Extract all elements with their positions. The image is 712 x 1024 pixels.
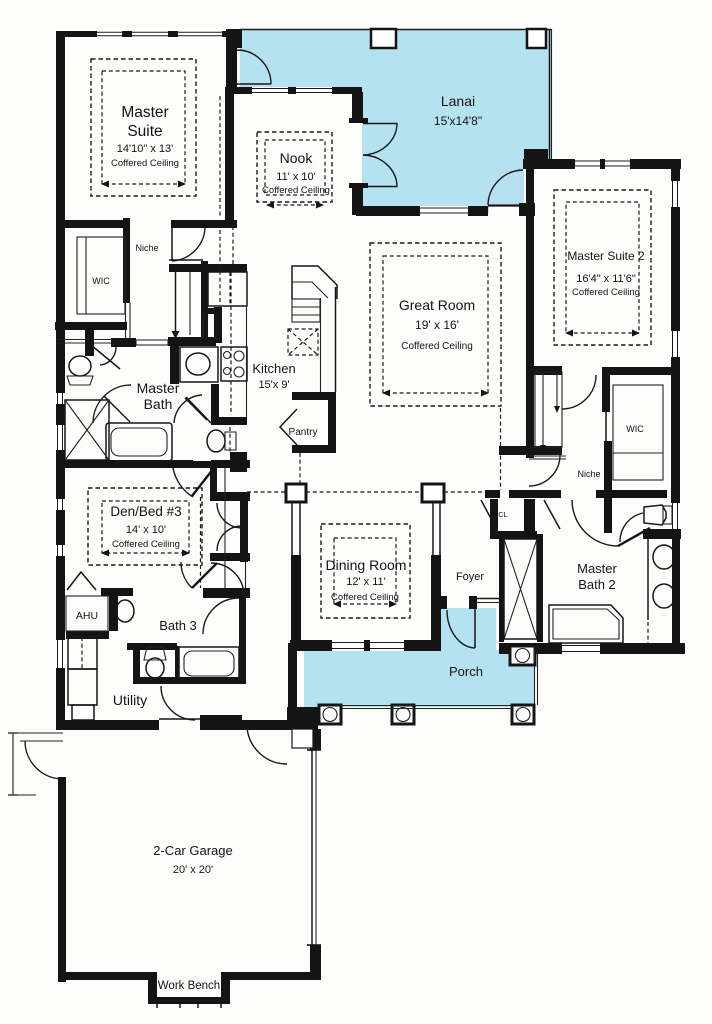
svg-text:Work Bench: Work Bench xyxy=(158,980,220,992)
svg-text:Coffered Ceiling: Coffered Ceiling xyxy=(331,592,399,603)
svg-text:Dining Room: Dining Room xyxy=(326,557,407,573)
svg-text:Lanai: Lanai xyxy=(441,93,475,109)
svg-text:Master: Master xyxy=(121,104,168,121)
svg-text:20' x 20': 20' x 20' xyxy=(173,864,213,876)
svg-text:Kitchen: Kitchen xyxy=(252,361,295,376)
svg-text:2-Car Garage: 2-Car Garage xyxy=(153,843,232,858)
svg-text:19' x 16': 19' x 16' xyxy=(415,318,459,332)
svg-text:14' x 10': 14' x 10' xyxy=(126,524,166,536)
svg-text:Master: Master xyxy=(577,561,617,576)
svg-text:Great Room: Great Room xyxy=(399,297,475,313)
svg-text:Den/Bed #3: Den/Bed #3 xyxy=(110,504,181,519)
svg-text:Nook: Nook xyxy=(280,150,314,166)
svg-text:Master: Master xyxy=(137,380,180,396)
svg-text:Niche: Niche xyxy=(577,469,600,479)
svg-text:AHU: AHU xyxy=(76,610,98,622)
svg-text:Coffered Ceiling: Coffered Ceiling xyxy=(401,341,473,352)
svg-text:14'10" x 13': 14'10" x 13' xyxy=(117,143,173,155)
svg-text:Coffered Ceiling: Coffered Ceiling xyxy=(262,185,330,196)
svg-text:15'x14'8": 15'x14'8" xyxy=(434,114,482,128)
svg-text:Utility: Utility xyxy=(113,692,147,708)
svg-text:Bath 2: Bath 2 xyxy=(578,577,616,592)
svg-text:Foyer: Foyer xyxy=(456,571,484,583)
svg-text:Bath 3: Bath 3 xyxy=(159,618,197,633)
svg-text:WIC: WIC xyxy=(626,424,644,434)
svg-text:Coffered Ceiling: Coffered Ceiling xyxy=(572,287,640,298)
svg-text:WIC: WIC xyxy=(92,276,110,286)
svg-text:16'4" x 11'6": 16'4" x 11'6" xyxy=(576,273,636,285)
svg-text:12' x 11': 12' x 11' xyxy=(346,576,385,588)
svg-text:CL: CL xyxy=(498,510,508,519)
svg-text:Pantry: Pantry xyxy=(289,427,318,438)
svg-text:Suite: Suite xyxy=(127,123,162,140)
svg-text:Coffered Ceiling: Coffered Ceiling xyxy=(111,158,179,169)
svg-text:15'x 9': 15'x 9' xyxy=(258,379,289,391)
svg-text:Porch: Porch xyxy=(449,664,483,679)
svg-text:Coffered Ceiling: Coffered Ceiling xyxy=(112,539,180,550)
svg-text:Master Suite 2: Master Suite 2 xyxy=(567,249,645,263)
svg-text:11' x 10': 11' x 10' xyxy=(276,171,315,183)
svg-text:Niche: Niche xyxy=(135,243,158,253)
svg-text:Bath: Bath xyxy=(144,396,173,412)
